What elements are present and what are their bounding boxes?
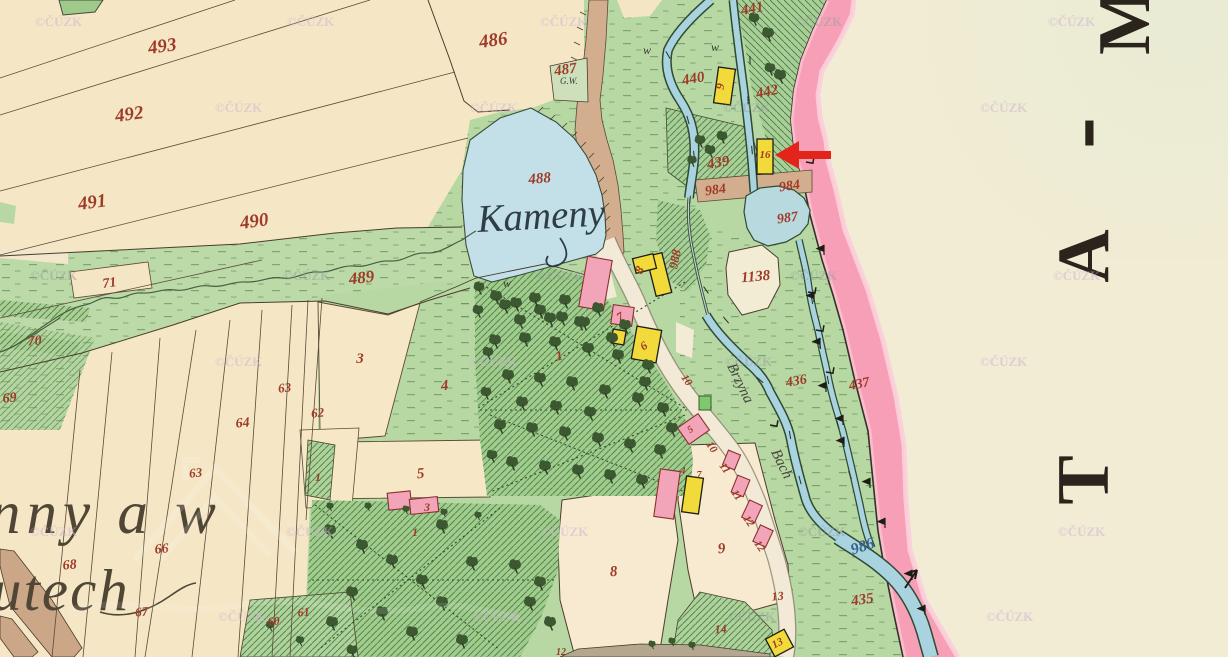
svg-text:63: 63 xyxy=(277,379,292,395)
svg-text:©ČÚZK: ©ČÚZK xyxy=(470,354,518,369)
svg-text:435: 435 xyxy=(849,590,875,609)
svg-text:©ČÚZK: ©ČÚZK xyxy=(541,524,589,539)
svg-text:©ČÚZK: ©ČÚZK xyxy=(286,524,334,539)
svg-text:984: 984 xyxy=(704,182,727,200)
svg-text:©ČÚZK: ©ČÚZK xyxy=(540,14,588,29)
svg-text:4: 4 xyxy=(680,466,686,477)
svg-text:M: M xyxy=(1084,0,1166,55)
svg-text:1138: 1138 xyxy=(740,268,771,287)
svg-text:©ČÚZK: ©ČÚZK xyxy=(980,100,1028,115)
svg-text:64: 64 xyxy=(235,415,250,431)
svg-text:14: 14 xyxy=(714,622,727,637)
svg-text:492: 492 xyxy=(113,102,146,127)
svg-text:12: 12 xyxy=(556,647,566,657)
svg-text:1: 1 xyxy=(412,525,418,539)
svg-text:61: 61 xyxy=(297,605,310,620)
svg-text:-: - xyxy=(1026,117,1133,149)
svg-text:488: 488 xyxy=(527,170,552,188)
svg-text:60: 60 xyxy=(267,614,280,629)
svg-text:3: 3 xyxy=(355,351,364,367)
svg-text:©ČÚZK: ©ČÚZK xyxy=(470,100,518,115)
svg-text:©ČÚZK: ©ČÚZK xyxy=(790,268,838,283)
svg-text:489: 489 xyxy=(347,267,376,289)
svg-text:63: 63 xyxy=(188,464,203,480)
svg-text:16: 16 xyxy=(760,149,772,161)
svg-text:987: 987 xyxy=(776,210,800,228)
svg-text:62: 62 xyxy=(310,404,325,420)
svg-text:©ČÚZK: ©ČÚZK xyxy=(723,100,771,115)
svg-text:©ČÚZK: ©ČÚZK xyxy=(287,14,335,29)
svg-text:©ČÚZK: ©ČÚZK xyxy=(1053,268,1101,283)
svg-text:©ČÚZK: ©ČÚZK xyxy=(1058,524,1106,539)
svg-text:3: 3 xyxy=(423,500,430,514)
svg-text:w: w xyxy=(711,40,719,54)
svg-text:493: 493 xyxy=(146,34,178,59)
svg-text:©ČÚZK: ©ČÚZK xyxy=(795,14,843,29)
svg-text:490: 490 xyxy=(238,209,271,234)
svg-text:491: 491 xyxy=(76,190,108,215)
svg-text:69: 69 xyxy=(2,390,17,406)
svg-text:©ČÚZK: ©ČÚZK xyxy=(537,268,585,283)
svg-text:©ČÚZK: ©ČÚZK xyxy=(30,268,78,283)
svg-text:©ČÚZK: ©ČÚZK xyxy=(30,524,78,539)
svg-text:©ČÚZK: ©ČÚZK xyxy=(283,268,331,283)
svg-text:487: 487 xyxy=(552,60,578,79)
svg-text:©ČÚZK: ©ČÚZK xyxy=(725,354,773,369)
svg-text:68: 68 xyxy=(62,557,77,573)
svg-text:w: w xyxy=(643,43,651,57)
svg-text:1: 1 xyxy=(315,470,321,484)
svg-text:©ČÚZK: ©ČÚZK xyxy=(798,524,846,539)
svg-text:©ČÚZK: ©ČÚZK xyxy=(218,609,266,624)
svg-text:©ČÚZK: ©ČÚZK xyxy=(728,609,776,624)
svg-text:©ČÚZK: ©ČÚZK xyxy=(473,609,521,624)
svg-text:©ČÚZK: ©ČÚZK xyxy=(215,100,263,115)
svg-text:Kameny: Kameny xyxy=(475,191,607,241)
svg-text:13: 13 xyxy=(771,589,784,604)
svg-text:70: 70 xyxy=(27,333,42,349)
svg-text:©ČÚZK: ©ČÚZK xyxy=(980,354,1028,369)
svg-text:71: 71 xyxy=(102,275,118,292)
svg-text:w: w xyxy=(503,276,511,290)
svg-text:©ČÚZK: ©ČÚZK xyxy=(215,354,263,369)
svg-text:486: 486 xyxy=(477,28,510,53)
svg-text:©ČÚZK: ©ČÚZK xyxy=(35,14,83,29)
svg-text:©ČÚZK: ©ČÚZK xyxy=(986,609,1034,624)
svg-text:984: 984 xyxy=(778,178,801,196)
svg-text:T: T xyxy=(1043,455,1125,504)
svg-text:©ČÚZK: ©ČÚZK xyxy=(1048,14,1096,29)
